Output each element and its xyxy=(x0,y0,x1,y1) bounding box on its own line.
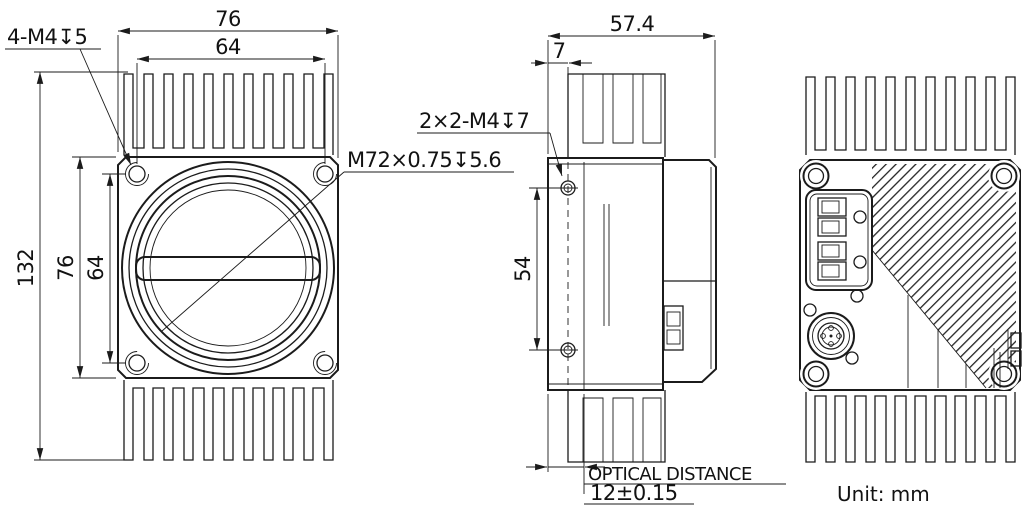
side-body-outline xyxy=(548,158,663,390)
unit-note: Unit: mm xyxy=(837,482,930,506)
screw-head xyxy=(800,358,832,390)
front-heatsink-fins-top xyxy=(124,74,333,155)
lens-mount-circles xyxy=(122,162,334,374)
optical-distance-value: 12±0.15 xyxy=(590,481,678,505)
dim-width-holes: 64 xyxy=(137,35,325,164)
front-dimensions: 76 64 132 76 64 xyxy=(14,7,338,460)
small-screw xyxy=(851,290,863,302)
screw-hole xyxy=(126,352,149,375)
dim-height-holes-text: 64 xyxy=(84,255,108,281)
jack-screw xyxy=(854,211,866,223)
dim-depth-overall-text: 57.4 xyxy=(610,12,655,36)
rear-view xyxy=(800,77,1021,462)
dim-width-overall-text: 76 xyxy=(215,7,241,31)
front-heatsink-fins-bottom xyxy=(124,380,333,460)
side-dimensions: 57.4 7 54 OPTICAL DISTANCE 12±0.15 xyxy=(511,12,786,505)
power-connector xyxy=(808,313,854,359)
callout-side-holes-text: 2×2-M4↧7 xyxy=(419,109,529,133)
rear-heatsink-fins-bottom xyxy=(806,392,1015,462)
camera-mechanical-drawing: 4-M4↧5 M72×0.75↧5.6 76 64 132 xyxy=(0,0,1024,524)
dim-width-overall: 76 xyxy=(118,7,338,158)
small-screw xyxy=(804,304,816,316)
jack-screw xyxy=(854,256,866,268)
screw-hole xyxy=(314,352,337,375)
screw-head xyxy=(800,160,832,192)
dim-height-overall-text: 132 xyxy=(14,249,38,288)
io-port xyxy=(818,198,846,236)
side-connector-bump xyxy=(664,306,683,350)
rear-io-connector-housing xyxy=(806,190,872,290)
dim-front-to-holes-text: 7 xyxy=(553,39,566,63)
dim-side-hole-spacing: 54 xyxy=(511,188,559,350)
lens-mount-slot xyxy=(136,257,320,280)
dim-width-holes-text: 64 xyxy=(215,35,241,59)
dim-height-holes: 64 xyxy=(84,174,126,363)
rear-heatsink-fins-top xyxy=(806,77,1015,155)
side-view: 2×2-M4↧7 xyxy=(417,74,716,462)
dim-side-hole-spacing-text: 54 xyxy=(511,256,535,282)
small-screw xyxy=(846,352,858,364)
screw-head xyxy=(988,358,1020,390)
screw-hole xyxy=(126,163,149,186)
side-rear-block xyxy=(663,160,716,382)
dim-depth-overall: 57.4 xyxy=(548,12,715,158)
io-port xyxy=(818,242,846,280)
dim-optical-distance: OPTICAL DISTANCE 12±0.15 xyxy=(526,394,786,505)
screw-head xyxy=(988,160,1020,192)
technical-drawing-page: 4-M4↧5 M72×0.75↧5.6 76 64 132 xyxy=(0,0,1024,524)
callout-mount-holes-text: 4-M4↧5 xyxy=(7,25,87,49)
callout-lens-thread-text: M72×0.75↧5.6 xyxy=(347,148,501,172)
callout-mount-holes: 4-M4↧5 xyxy=(5,25,131,165)
front-view: 4-M4↧5 M72×0.75↧5.6 xyxy=(5,25,514,460)
dim-height-body-text: 76 xyxy=(54,255,78,281)
